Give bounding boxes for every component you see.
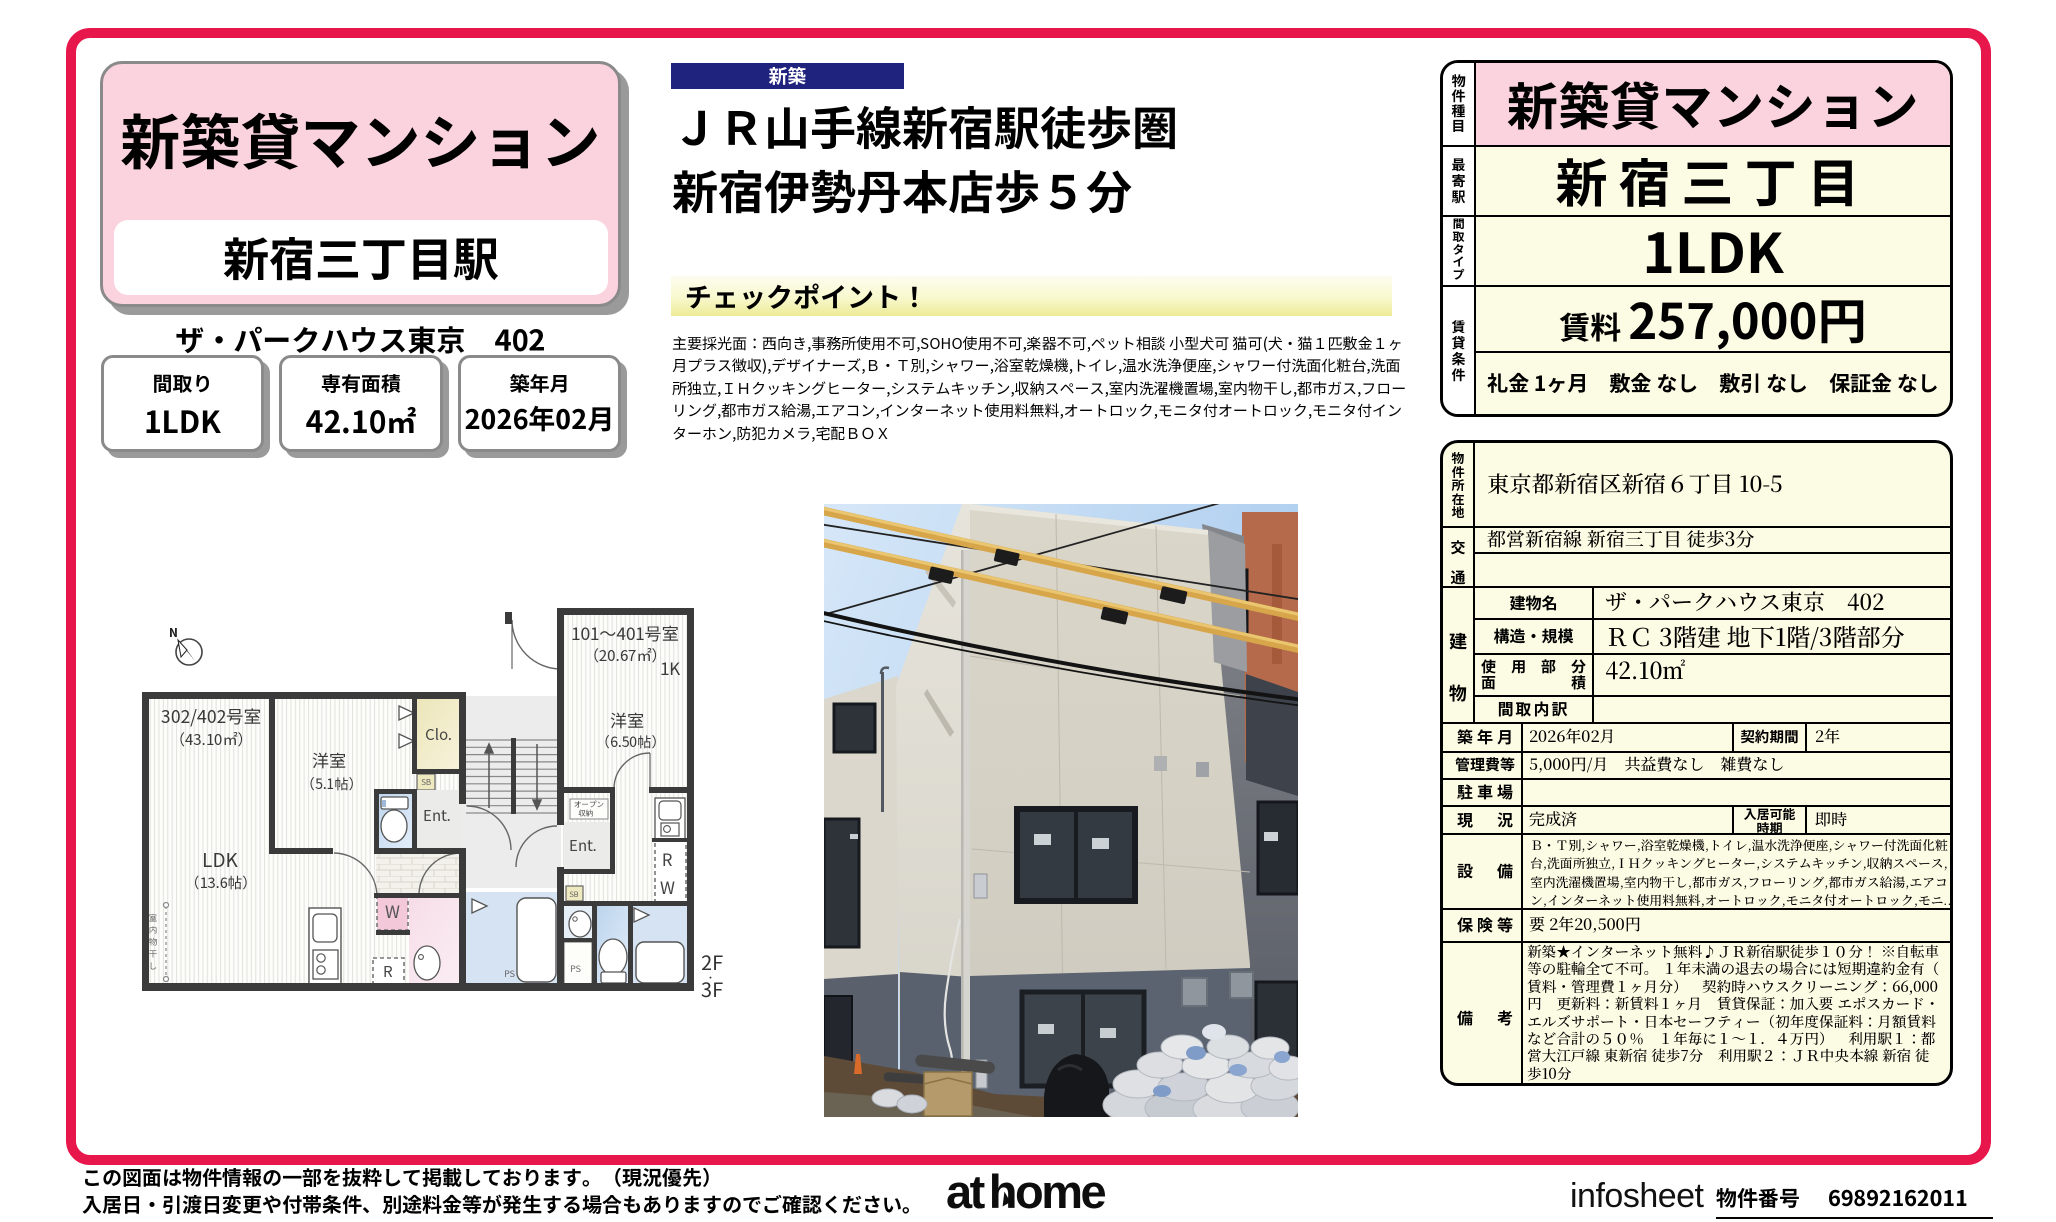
svg-text:LDK: LDK: [202, 846, 238, 873]
svg-text:PS: PS: [570, 962, 581, 975]
svg-text:N: N: [169, 624, 178, 641]
svg-text:（6.50帖）: （6.50帖）: [596, 732, 665, 752]
svg-text:（20.67㎡）: （20.67㎡）: [584, 645, 666, 666]
svg-text:3F: 3F: [701, 974, 723, 1000]
svg-text:PS: PS: [504, 967, 515, 980]
svg-text:R: R: [383, 961, 393, 982]
svg-text:SB: SB: [568, 889, 578, 900]
svg-text:（13.6帖）: （13.6帖）: [185, 872, 257, 893]
svg-text:Ent.: Ent.: [423, 805, 451, 826]
svg-text:302/402号室: 302/402号室: [161, 704, 261, 729]
svg-text:W: W: [660, 874, 675, 899]
svg-text:洋室: 洋室: [312, 747, 346, 772]
svg-text:Ent.: Ent.: [569, 835, 597, 856]
svg-text:（43.10㎡）: （43.10㎡）: [170, 729, 252, 750]
svg-text:R: R: [662, 846, 673, 871]
svg-text:収納: 収納: [578, 808, 593, 819]
svg-text:Clo.: Clo.: [425, 724, 452, 745]
svg-text:SB: SB: [421, 777, 431, 788]
svg-text:1K: 1K: [660, 655, 681, 680]
svg-text:101〜401号室: 101〜401号室: [571, 620, 679, 645]
svg-text:（5.1帖）: （5.1帖）: [301, 774, 362, 794]
svg-text:洋室: 洋室: [610, 707, 644, 732]
svg-text:W: W: [385, 898, 400, 923]
